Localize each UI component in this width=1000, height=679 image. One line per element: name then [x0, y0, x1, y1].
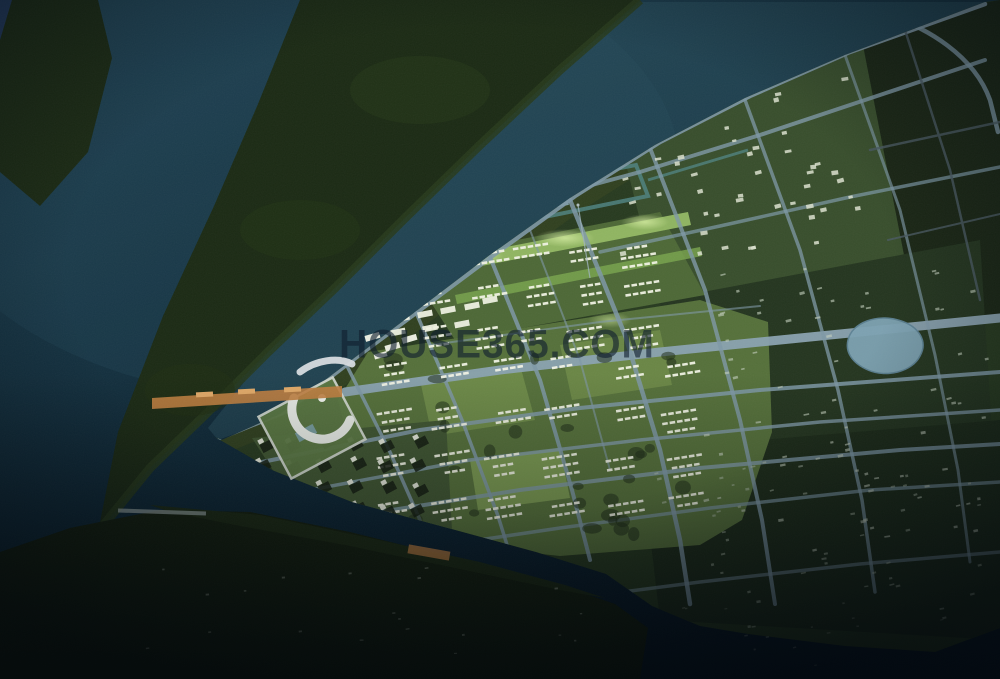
watermark: HOUSE365.COM: [339, 323, 655, 368]
aerial-render: HOUSE365.COM: [0, 0, 1000, 679]
